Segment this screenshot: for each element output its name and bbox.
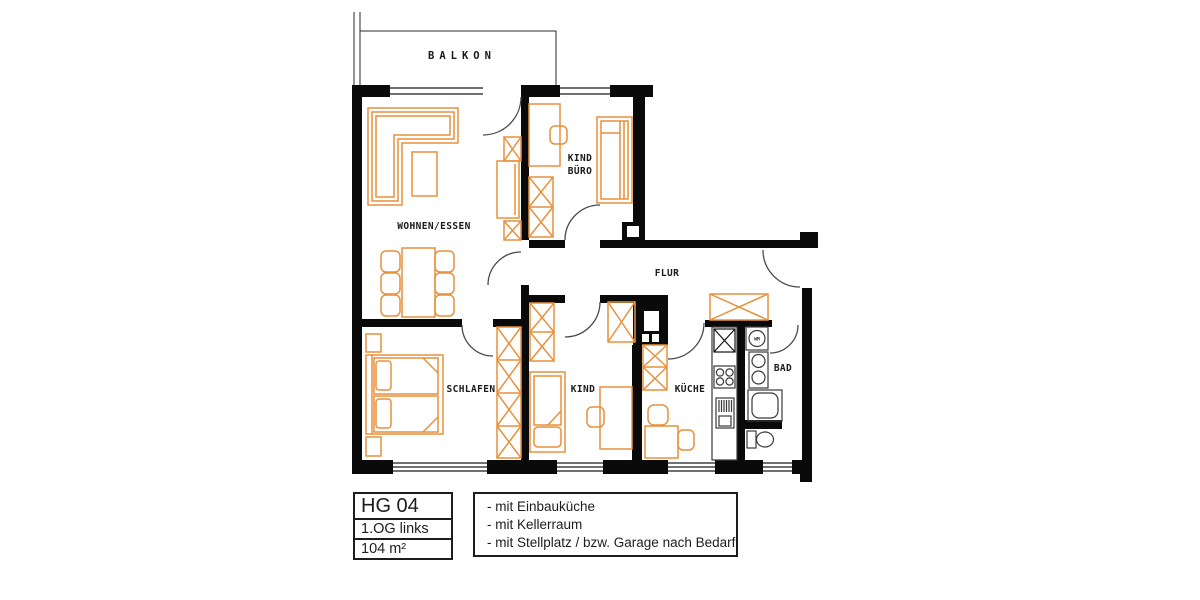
nightstand bbox=[366, 437, 381, 456]
child-wardrobe-left bbox=[530, 303, 554, 361]
coffee-table bbox=[412, 152, 437, 196]
living-cabinet-column bbox=[497, 137, 521, 240]
room-label-living: WOHNEN/ESSEN bbox=[397, 221, 470, 232]
wall-bedroom-top-a bbox=[362, 319, 462, 327]
counter-outline bbox=[712, 327, 737, 460]
wall-kitchen-bath bbox=[737, 327, 745, 460]
room-label-office-1: KIND bbox=[568, 153, 592, 164]
unit-floor: 1.OG links bbox=[355, 518, 451, 538]
windows bbox=[390, 88, 792, 471]
kitchen-furniture bbox=[643, 345, 694, 458]
double-bed bbox=[366, 355, 443, 434]
sofa-corner bbox=[368, 108, 458, 205]
child-chair bbox=[587, 407, 604, 427]
toilet bbox=[747, 431, 774, 448]
child-room-furniture bbox=[530, 302, 635, 452]
window-office bbox=[560, 88, 610, 94]
wall-top-1 bbox=[352, 85, 390, 97]
child-bed bbox=[530, 372, 565, 452]
washing-machine-label: WM bbox=[754, 337, 760, 343]
room-label-office-2: BÜRO bbox=[568, 166, 592, 177]
feature-line: - mit Einbauküche bbox=[487, 498, 736, 516]
shaft-office-hole bbox=[627, 226, 639, 237]
shaft-kitchen-hole-3 bbox=[652, 334, 659, 342]
office-desk bbox=[529, 104, 560, 166]
shaft-kitchen-hole-2 bbox=[642, 334, 649, 342]
door-arc-office bbox=[565, 205, 600, 240]
bedroom-furniture bbox=[366, 327, 521, 458]
wall-bottom-2 bbox=[487, 460, 557, 474]
window-kitchen bbox=[668, 463, 715, 471]
dining-chair bbox=[381, 251, 400, 272]
wall-bottom-3 bbox=[603, 460, 668, 474]
wall-hall-top-a bbox=[529, 240, 565, 248]
shower bbox=[748, 390, 782, 421]
office-wardrobe bbox=[529, 177, 553, 237]
dining-chair bbox=[381, 295, 400, 316]
wall-bottom-1 bbox=[352, 460, 393, 474]
wall-living-office bbox=[521, 97, 529, 240]
dining-chair bbox=[435, 295, 454, 316]
feature-info-box: - mit Einbauküche - mit Kellerraum - mit… bbox=[473, 492, 738, 557]
kitchen-counter bbox=[712, 327, 737, 460]
wall-right bbox=[802, 288, 812, 460]
wall-entry-corner bbox=[800, 232, 818, 248]
door-arc-kitchen bbox=[668, 323, 704, 359]
room-label-bath: BAD bbox=[774, 363, 792, 374]
room-label-child: KIND bbox=[571, 384, 595, 395]
window-bath bbox=[763, 463, 792, 471]
wall-kitchen-bath-top bbox=[705, 320, 772, 327]
child-wardrobe-right bbox=[608, 302, 635, 342]
wall-child-kitchen bbox=[632, 345, 642, 460]
door-arc-entry bbox=[763, 250, 800, 287]
child-desk bbox=[600, 387, 632, 449]
dining-chair bbox=[381, 273, 400, 294]
feature-line: - mit Stellplatz / bzw. Garage nach Beda… bbox=[487, 534, 736, 552]
fridge bbox=[716, 398, 734, 428]
window-bedroom bbox=[393, 463, 487, 471]
wall-hall-top-b bbox=[600, 240, 800, 248]
room-label-hall: FLUR bbox=[655, 268, 679, 279]
hall-furniture bbox=[710, 294, 768, 320]
walls bbox=[352, 85, 818, 482]
balcony bbox=[354, 12, 556, 85]
bedroom-wardrobe bbox=[497, 327, 521, 458]
room-label-kitchen: KÜCHE bbox=[675, 384, 706, 395]
kitchen-table bbox=[645, 426, 678, 458]
dining-table bbox=[402, 248, 435, 317]
floorplan-page: BALKON bbox=[0, 0, 1200, 600]
building-edge-line bbox=[354, 12, 360, 85]
shaft-kitchen-hole-1 bbox=[644, 311, 659, 331]
wall-bottom-4 bbox=[715, 460, 763, 474]
wall-bedroom-child bbox=[521, 285, 529, 460]
feature-line: - mit Kellerraum bbox=[487, 516, 736, 534]
counter-cabinet bbox=[714, 329, 735, 352]
window-child bbox=[557, 463, 603, 471]
wall-office-east bbox=[633, 97, 645, 240]
kitchen-chair bbox=[648, 405, 668, 425]
window-living bbox=[390, 88, 483, 94]
kitchen-chair bbox=[678, 430, 694, 450]
office-bed bbox=[597, 117, 632, 203]
door-arc-bedroom bbox=[462, 325, 493, 356]
wall-corner-se bbox=[800, 460, 812, 482]
dining-chair bbox=[435, 273, 454, 294]
door-arc-bath bbox=[770, 325, 798, 353]
dining-chair bbox=[435, 251, 454, 272]
wall-child-top-a bbox=[529, 295, 565, 303]
door-arc-balcony bbox=[483, 97, 521, 135]
double-sink bbox=[749, 352, 768, 388]
nightstand bbox=[366, 334, 381, 352]
office-chair bbox=[550, 126, 567, 144]
bath-fixtures bbox=[746, 327, 782, 448]
living-room-furniture bbox=[368, 108, 521, 317]
wall-top-2 bbox=[521, 85, 560, 97]
unit-id: HG 04 bbox=[355, 494, 451, 518]
wall-bedroom-top-b bbox=[493, 319, 521, 327]
unit-area: 104 m² bbox=[355, 538, 451, 558]
door-arc-child bbox=[565, 302, 600, 337]
stove bbox=[714, 366, 735, 388]
wall-left bbox=[352, 85, 362, 474]
unit-info-box: HG 04 1.OG links 104 m² bbox=[353, 492, 453, 560]
wall-top-3 bbox=[610, 85, 653, 97]
room-label-balcony: BALKON bbox=[428, 50, 496, 62]
door-arc-living-hall bbox=[488, 252, 521, 285]
room-label-bedroom: SCHLAFEN bbox=[447, 384, 496, 395]
kitchen-wardrobe bbox=[643, 345, 667, 390]
